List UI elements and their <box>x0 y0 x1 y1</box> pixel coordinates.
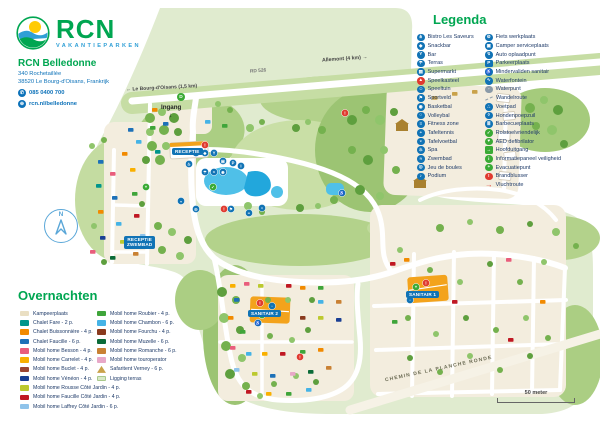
play-castle-icon: ▲ <box>417 77 425 85</box>
unit-marker <box>390 262 396 266</box>
legend-item: ◊ Hondenpoepzuil <box>485 111 561 120</box>
table-tennis-icon: ◓ <box>417 129 425 137</box>
unit-marker <box>252 372 258 376</box>
tree <box>147 141 157 151</box>
stay-item: Mobil home Laffrey Côté Jardin - 6 p. <box>20 402 120 411</box>
tree <box>217 287 227 297</box>
accommodation-swatch <box>97 366 106 373</box>
tree <box>436 224 444 232</box>
compass: N <box>44 209 78 243</box>
tree <box>560 140 568 148</box>
legend-item: ♨ Spa <box>417 146 474 155</box>
website-url: rcn.nl/belledonne <box>29 101 77 107</box>
legend-item: P Parkeerplaats <box>485 59 561 68</box>
legend-item: ⋔ Bistro Les Saveurs <box>417 33 474 42</box>
tree <box>176 252 184 260</box>
tree <box>292 124 300 132</box>
unit-marker <box>300 316 306 320</box>
tree <box>523 315 529 321</box>
unit-marker <box>96 184 102 188</box>
poi-glyph: ! <box>259 301 260 306</box>
scale-label: 50 meter <box>497 390 575 396</box>
accommodation-swatch <box>20 348 29 354</box>
legend-item: ▲ Speelkasteel <box>417 76 474 85</box>
accommodation-swatch <box>97 311 106 317</box>
dog-waste-icon: ◊ <box>485 112 493 120</box>
entrance-arrow-icon: ↓ <box>169 112 172 119</box>
tree <box>221 341 231 351</box>
unit-marker <box>152 108 158 112</box>
walking-route-icon <box>485 96 493 100</box>
stay-item: Mobil home Chambon - 6 p. <box>97 318 177 327</box>
tree <box>246 124 254 132</box>
unit-marker <box>100 236 106 240</box>
unit-marker <box>116 222 122 226</box>
legend-item: ! Brandblusser <box>485 172 561 181</box>
tree <box>309 297 315 303</box>
tree <box>433 331 439 337</box>
unit-marker <box>308 370 314 374</box>
d-marker: D <box>177 93 185 101</box>
poi-glyph: ♨ <box>187 162 191 167</box>
tree <box>219 313 229 323</box>
unit-marker <box>112 196 118 200</box>
park-name: RCN Belledonne <box>18 58 96 69</box>
unit-marker <box>205 120 211 124</box>
tree <box>265 297 271 303</box>
tree <box>517 279 523 285</box>
tree <box>397 247 403 253</box>
swimming-pool-icon: ≈ <box>417 155 425 163</box>
unit-marker <box>266 392 272 396</box>
tree <box>362 106 370 114</box>
stay-item: Mobil home Fourchu - 4 p. <box>97 328 177 337</box>
spa-icon: ♨ <box>417 146 425 154</box>
legend-item: ↯ Auto oplaadpunt <box>485 50 561 59</box>
unit-marker <box>246 390 252 394</box>
unit-marker <box>318 300 324 304</box>
accessible-sanitary-icon: ♿ <box>485 68 493 76</box>
legend-item: ♪ Podium <box>417 172 474 181</box>
stay-item: Mobil home Roubier - 4 p. <box>97 309 177 318</box>
poi-glyph: ! <box>223 207 224 212</box>
tree <box>573 243 579 249</box>
accommodation-swatch <box>20 404 29 410</box>
legend-item: ≣ Barbecueplaats <box>485 120 561 129</box>
tree <box>162 142 170 150</box>
bike-repair-icon: ⚙ <box>485 34 493 42</box>
unit-marker <box>286 392 292 396</box>
tree <box>139 201 145 207</box>
unit-marker <box>150 126 156 130</box>
bar-icon: Y <box>417 51 425 59</box>
receptie-badge: RECEPTIE <box>172 148 203 155</box>
unit-marker <box>286 284 292 288</box>
tree <box>159 125 169 135</box>
legend-item: ◎ Jeu de boules <box>417 163 474 172</box>
footpath-icon: ∴ <box>485 103 493 111</box>
snackbar-icon: ◆ <box>417 42 425 50</box>
stay-item: Ligging terras <box>97 374 177 383</box>
tree <box>225 369 235 379</box>
poi-glyph: ⚑ <box>229 207 233 212</box>
website-row: ⊕ rcn.nl/belledonne <box>18 100 77 108</box>
accommodation-swatch <box>20 320 29 326</box>
logo-wordmark: RCN <box>56 16 141 42</box>
tree <box>487 261 493 267</box>
tree <box>427 267 433 273</box>
poi-glyph: i <box>240 164 241 169</box>
poi-glyph: ◎ <box>194 207 198 212</box>
unit-marker <box>222 124 228 128</box>
tree <box>313 379 319 385</box>
unit-marker <box>404 258 410 262</box>
legend-item: ☺ Speeltuin <box>417 85 474 94</box>
tree <box>493 327 499 333</box>
accommodation-swatch <box>20 367 29 373</box>
water-fountain-icon: ∿ <box>485 77 493 85</box>
tree <box>267 333 273 339</box>
legend-item: + Evacuatiepunt <box>485 163 561 172</box>
unit-marker <box>234 368 240 372</box>
tree <box>154 222 162 230</box>
unit-marker <box>258 284 264 288</box>
tree <box>552 228 560 236</box>
legend-item: ♿ Mindervaliden sanitair <box>485 68 561 77</box>
globe-icon: ⊕ <box>18 100 26 108</box>
unit-marker <box>326 366 332 370</box>
accommodation-swatch <box>20 395 29 401</box>
poi-glyph: ! <box>204 143 205 148</box>
tree <box>101 137 107 143</box>
unit-marker <box>300 350 306 354</box>
unit-marker <box>128 128 134 132</box>
stay-item: Mobil home Rousse Côté Jardin - 4 p. <box>20 383 120 392</box>
park-map-page: ⋔◆Y♨▤P☂≈◉i◎⚑≡◓◒♿!!!!!!✓i++♿◦◦ RCN VAKANT… <box>0 0 600 427</box>
tree <box>363 155 373 165</box>
unit-marker <box>246 352 252 356</box>
stay-item: Mobil home touroperator <box>97 355 177 364</box>
tree <box>392 166 400 174</box>
unit-marker <box>134 214 140 218</box>
poi-glyph: ! <box>425 281 426 286</box>
poi-glyph: ♿ <box>255 321 260 326</box>
unit-marker <box>240 330 246 334</box>
scale-line <box>497 398 575 403</box>
legend-item: ✓ Rolstoelvriendelijk <box>485 129 561 138</box>
tree <box>257 393 263 399</box>
phone-icon: ✆ <box>18 89 26 97</box>
camper-service-icon: ▣ <box>485 42 493 50</box>
unit-marker <box>133 252 139 256</box>
tree <box>496 226 504 234</box>
legend-item: ∿ Waterfontein <box>485 76 561 85</box>
tree <box>305 327 311 333</box>
accommodation-swatch <box>97 357 106 363</box>
unit-marker <box>90 250 96 254</box>
playground-icon: ☺ <box>417 86 425 94</box>
tree <box>375 115 385 125</box>
legend-item: ⚙ Fiets werkplaats <box>485 33 561 42</box>
legend-item: ▤ Supermarkt <box>417 68 474 77</box>
safety-info-icon: i <box>485 155 493 163</box>
tree <box>91 223 97 229</box>
tree <box>238 354 246 362</box>
tree <box>158 246 166 254</box>
unit-marker <box>300 286 306 290</box>
unit-marker <box>452 300 458 304</box>
tree <box>457 279 463 285</box>
legend-column-1: ⋔ Bistro Les Saveurs ◆ Snackbar Y Bar ☂ … <box>417 33 474 181</box>
address-line1: 340 Rochetaillée <box>18 71 61 77</box>
barbecue-icon: ≣ <box>485 120 493 128</box>
legend-item: ◆ Snackbar <box>417 42 474 51</box>
sanitair-2-badge: SANITAIR 2 <box>248 310 281 317</box>
unit-marker <box>318 316 324 320</box>
tree <box>390 108 398 116</box>
tree <box>101 259 107 265</box>
unit-marker <box>132 192 138 196</box>
accommodation-swatch <box>97 320 106 326</box>
unit-marker <box>336 318 342 322</box>
legend-item: Wandelroute <box>485 94 561 103</box>
legend-item: ≈ Zwembad <box>417 155 474 164</box>
terrace-icon: ☂ <box>417 60 425 68</box>
tree <box>142 156 150 164</box>
unit-marker <box>306 388 312 392</box>
legend-item: → Hoofduitgang <box>485 146 561 155</box>
tree <box>271 381 277 387</box>
poi-glyph: ! <box>299 355 300 360</box>
tree <box>347 115 357 125</box>
legend-item: ⚑ Sportveld <box>417 94 474 103</box>
tree <box>376 192 384 200</box>
unit-marker <box>110 256 116 260</box>
unit-marker <box>508 338 514 342</box>
accommodation-swatch <box>97 339 106 345</box>
tree <box>527 353 533 359</box>
unit-marker <box>230 346 236 350</box>
evacuation-point-icon: + <box>485 164 493 172</box>
parking-icon: P <box>485 60 493 68</box>
sanitair-1-badge: SANITAIR 1 <box>406 291 439 298</box>
stay-item: Mobil home Romanche - 6 p. <box>97 346 177 355</box>
poi-glyph: ♿ <box>339 191 344 196</box>
main-exit-icon: → <box>485 146 493 154</box>
tree <box>467 219 473 225</box>
tree <box>168 228 176 236</box>
tree <box>355 185 365 195</box>
rcn-logo: RCN VAKANTIEPARKEN <box>16 16 141 50</box>
accommodation-swatch <box>20 311 29 317</box>
legend-item: ▣ Camper serviceplaats <box>485 42 561 51</box>
stay-column-2: Mobil home Roubier - 4 p. Mobil home Cha… <box>97 309 177 383</box>
legend-item: ◓ Tafeltennis <box>417 129 474 138</box>
rcn-logo-icon <box>16 16 50 50</box>
tree <box>545 335 551 341</box>
water-point-icon: ◦ <box>485 86 493 94</box>
tree <box>145 113 155 123</box>
unit-marker <box>270 374 276 378</box>
unit-marker <box>155 150 161 154</box>
unit-marker <box>244 282 250 286</box>
unit-marker <box>122 152 128 156</box>
tree <box>242 382 250 390</box>
tree <box>296 204 304 212</box>
tree <box>305 119 311 125</box>
stay-item: Mobil home Faucille Côté Jardin - 4 p. <box>20 393 120 402</box>
fire-extinguisher-icon: ! <box>485 173 493 181</box>
tree <box>155 155 165 165</box>
stay-item: Mobil home Muzelle - 6 p. <box>97 337 177 346</box>
table-football-icon: ◒ <box>417 138 425 146</box>
legend-item: ◉ Basketbal <box>417 103 474 112</box>
wheelchair-friendly-icon: ✓ <box>485 129 493 137</box>
tree <box>541 259 547 265</box>
escape-route-icon: → <box>485 181 493 189</box>
stay-item: Safaritent Verney - 6 p. <box>97 365 177 374</box>
tree <box>184 236 192 244</box>
tree <box>285 297 291 303</box>
unit-marker <box>392 320 398 324</box>
unit-marker <box>262 352 268 356</box>
legend-item: ○ Volleybal <box>417 111 474 120</box>
accommodation-swatch <box>20 339 29 345</box>
legend-item: Y Bar <box>417 50 474 59</box>
legend-column-2: ⚙ Fiets werkplaats ▣ Camper serviceplaat… <box>485 33 561 189</box>
phone-number: 085 0400 700 <box>29 90 64 96</box>
accommodation-swatch <box>20 385 29 391</box>
unit-marker <box>228 316 234 320</box>
petanque-icon: ◎ <box>417 164 425 172</box>
poi-glyph: ✓ <box>211 185 215 190</box>
compass-needle-icon <box>52 219 70 237</box>
poi-glyph: ☂ <box>203 170 207 175</box>
unit-marker <box>136 140 142 144</box>
supermarket-icon: ▤ <box>417 68 425 76</box>
tree <box>330 196 338 204</box>
tree <box>497 367 503 373</box>
tree <box>463 315 469 321</box>
restaurant-icon: ⋔ <box>417 34 425 42</box>
legend-title: Legenda <box>433 12 486 27</box>
unit-marker <box>230 284 236 288</box>
legend-item: ♥ AED defibrilator <box>485 137 561 146</box>
legend-item: → Vluchtroute <box>485 181 561 190</box>
poi-glyph: ! <box>344 111 345 116</box>
tree <box>380 146 388 154</box>
unit-marker <box>318 286 324 290</box>
tree <box>407 355 413 361</box>
aed-icon: ♥ <box>485 138 493 146</box>
volleyball-icon: ○ <box>417 112 425 120</box>
tree <box>89 143 95 149</box>
basketball-icon: ◉ <box>417 103 425 111</box>
tree <box>527 221 533 227</box>
ev-charging-icon: ↯ <box>485 51 493 59</box>
poi-glyph: ▤ <box>221 159 225 164</box>
legend-item: i Informatiepaneel veiligheid <box>485 155 561 164</box>
poi-glyph: ◉ <box>221 170 225 175</box>
tree <box>174 128 182 136</box>
unit-marker <box>540 300 546 304</box>
scale-bar: 50 meter <box>497 390 575 403</box>
receptie-zwembad-badge: RECEPTIE ZWEMBAD <box>124 236 155 249</box>
legend-item: ☂ Terras <box>417 59 474 68</box>
legend-item: ◒ Tafelvoetbal <box>417 137 474 146</box>
tree <box>215 101 221 107</box>
tree <box>405 315 411 321</box>
unit-marker <box>110 172 116 176</box>
poi-glyph: P <box>232 161 235 166</box>
tree <box>318 126 326 134</box>
unit-marker <box>163 122 169 126</box>
unit-marker <box>98 160 104 164</box>
tree <box>227 107 233 113</box>
tree <box>259 119 265 125</box>
legend-item: ◦ Waterpunt <box>485 85 561 94</box>
accommodation-swatch <box>20 329 29 335</box>
phone-row: ✆ 085 0400 700 <box>18 89 64 97</box>
unit-marker <box>506 258 512 262</box>
tree <box>315 203 321 209</box>
logo-tagline: VAKANTIEPARKEN <box>56 44 141 50</box>
accommodation-swatch <box>97 348 106 354</box>
poi-glyph: Y <box>213 151 216 156</box>
unit-marker <box>130 168 136 172</box>
unit-marker <box>318 348 324 352</box>
accommodation-swatch <box>97 376 106 382</box>
accommodation-swatch <box>20 376 29 382</box>
unit-marker <box>290 372 296 376</box>
stay-legend-title: Overnachten <box>18 288 97 303</box>
stage-icon: ♪ <box>417 173 425 181</box>
legend-item: ∴ Voetpad <box>485 103 561 112</box>
unit-marker <box>234 298 240 302</box>
entrance-label: Ingang <box>161 104 181 111</box>
unit-marker <box>280 352 286 356</box>
tree <box>348 146 356 154</box>
legend-item: ≡ Fitness zone <box>417 120 474 129</box>
address-line2: 38520 Le Bourg-d'Oisans, Frankrijk <box>18 79 109 85</box>
accommodation-swatch <box>97 329 106 335</box>
unit-marker <box>98 210 104 214</box>
unit-marker <box>336 300 342 304</box>
sports-field-icon: ⚑ <box>417 94 425 102</box>
tree <box>244 202 252 210</box>
fitness-icon: ≡ <box>417 120 425 128</box>
accommodation-swatch <box>20 357 29 363</box>
tree <box>289 337 295 343</box>
